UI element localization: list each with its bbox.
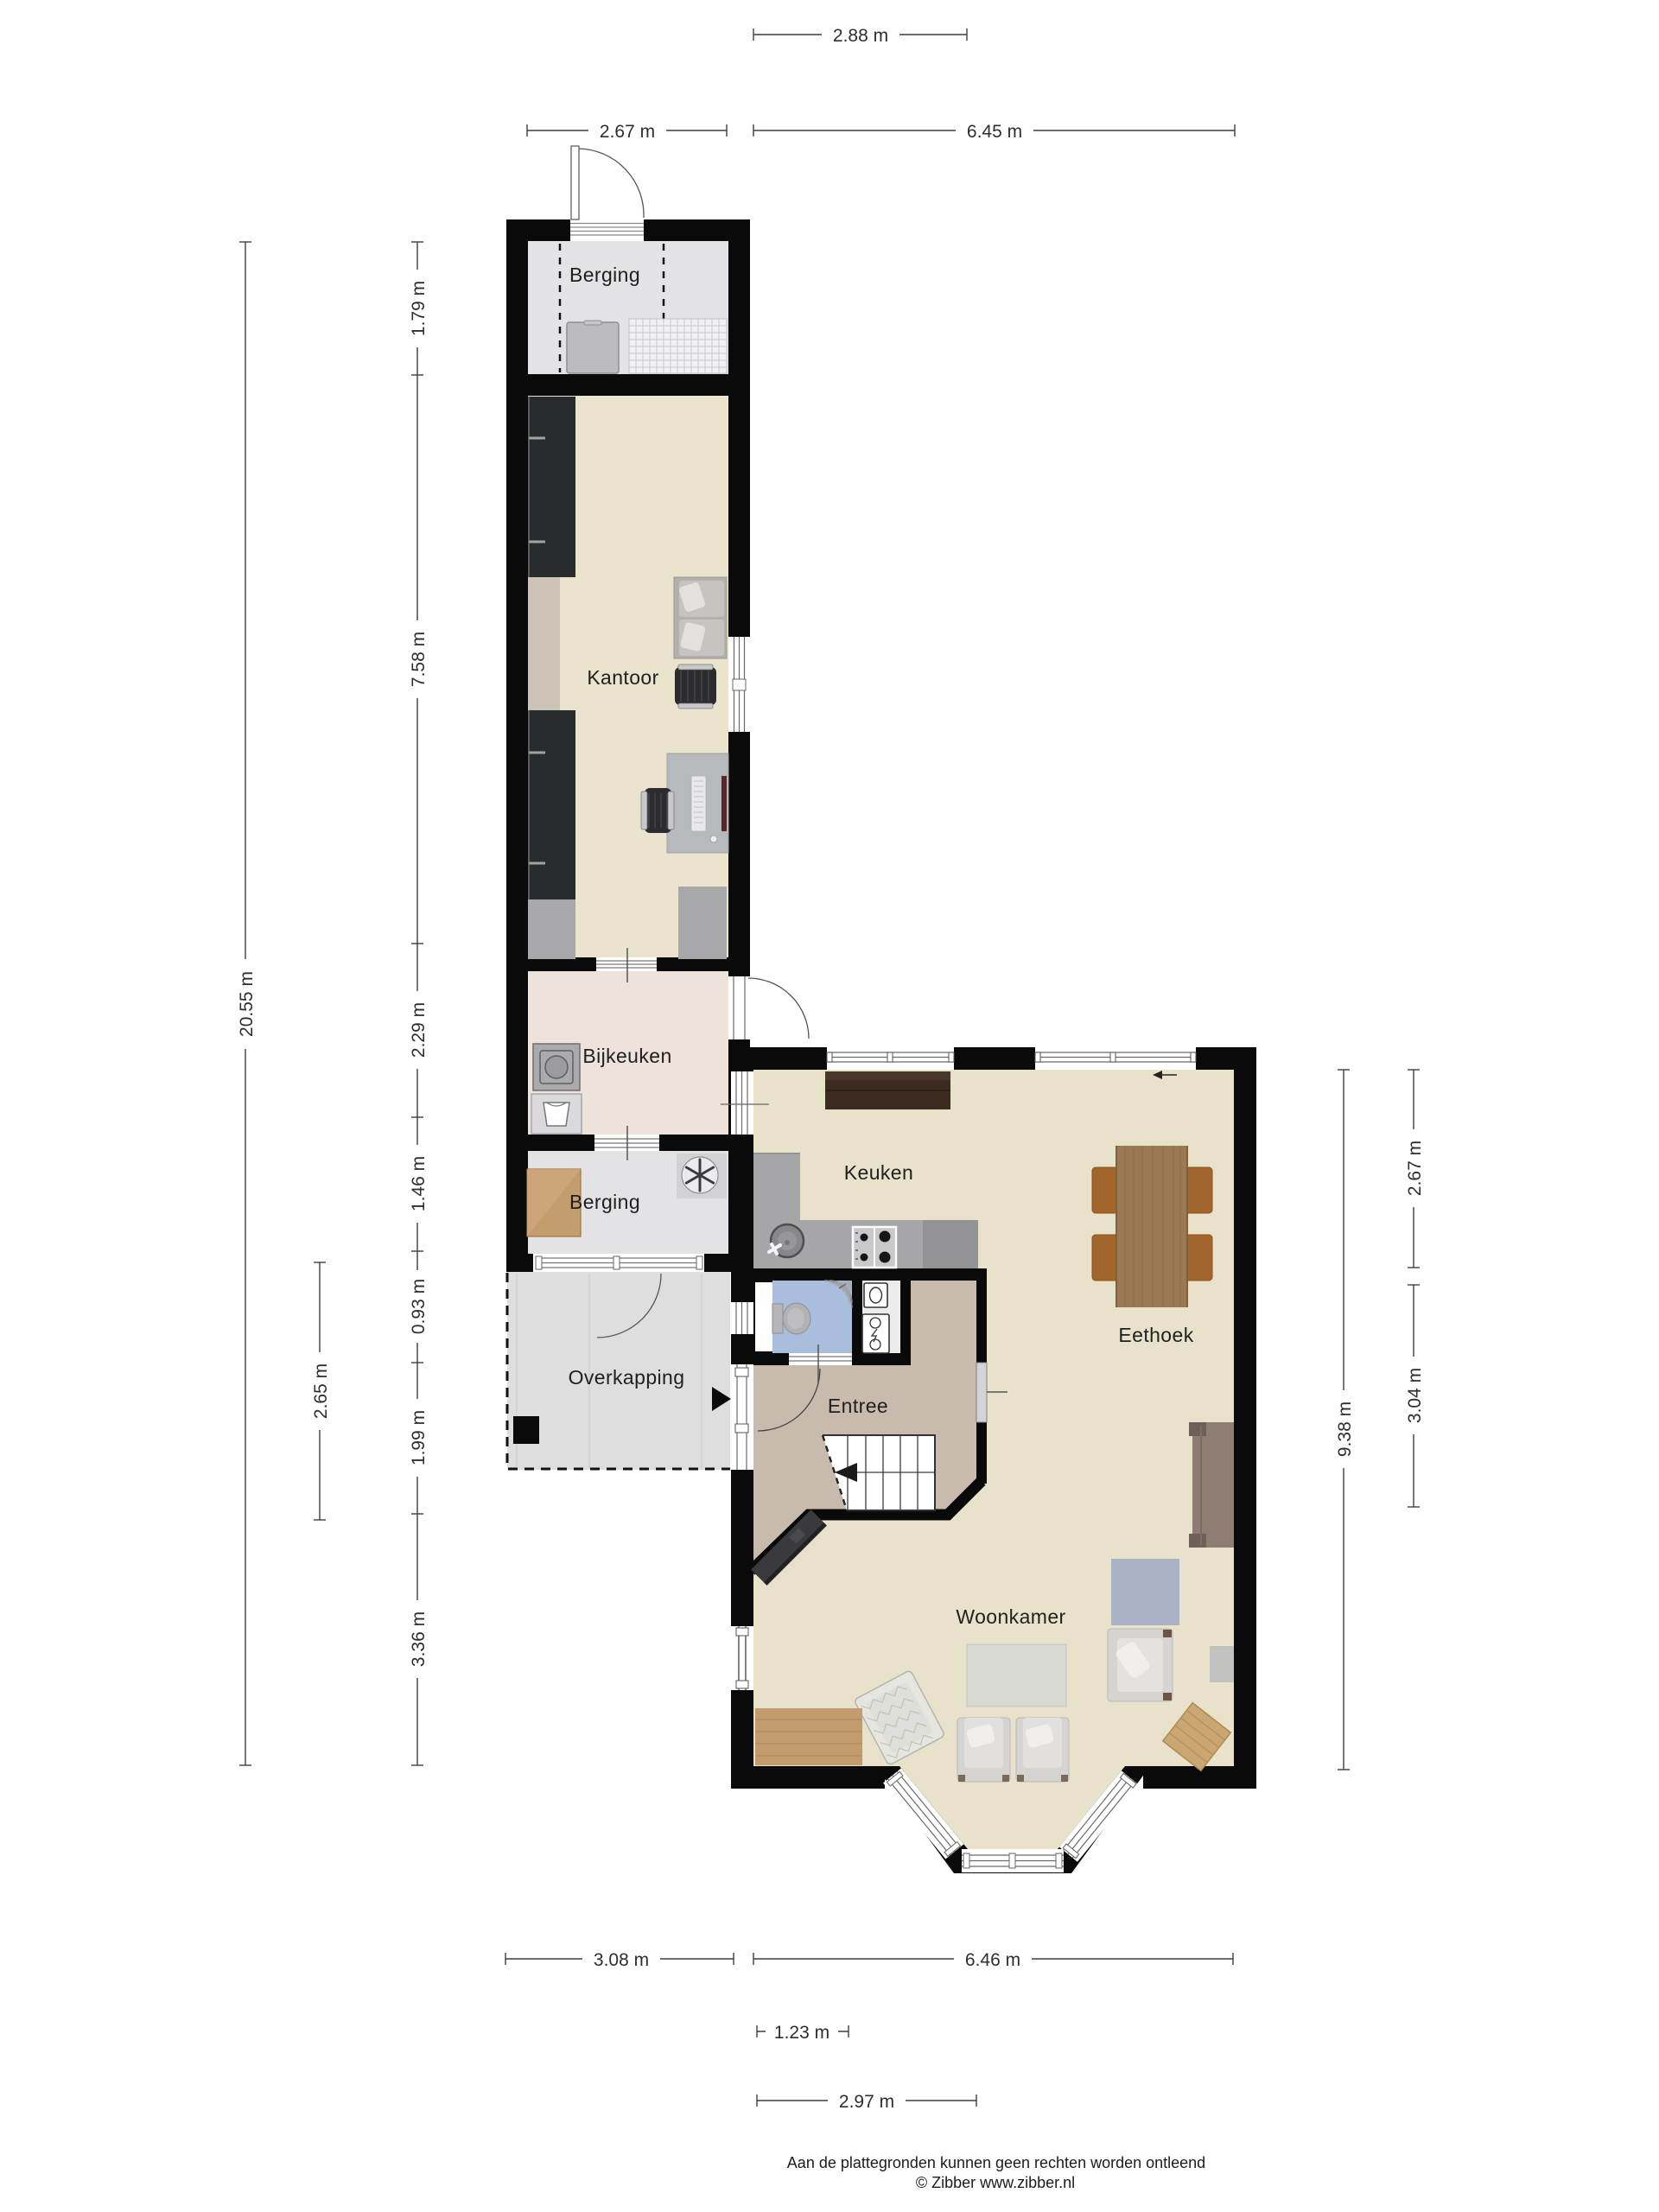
- svg-text:1.46 m: 1.46 m: [409, 1156, 429, 1211]
- svg-text:9.38 m: 9.38 m: [1335, 1402, 1355, 1457]
- svg-text:2.67 m: 2.67 m: [600, 122, 655, 142]
- svg-text:2.97 m: 2.97 m: [839, 2092, 894, 2112]
- svg-text:2.65 m: 2.65 m: [311, 1363, 331, 1419]
- svg-text:20.55 m: 20.55 m: [237, 971, 257, 1037]
- svg-text:Woonkamer: Woonkamer: [956, 1605, 1065, 1628]
- svg-text:Overkapping: Overkapping: [569, 1366, 685, 1389]
- svg-text:Berging: Berging: [569, 1191, 640, 1213]
- svg-text:1.23 m: 1.23 m: [774, 2023, 829, 2043]
- svg-text:Berging: Berging: [569, 264, 640, 286]
- svg-text:2.29 m: 2.29 m: [409, 1002, 429, 1058]
- svg-text:Keuken: Keuken: [844, 1161, 913, 1184]
- svg-text:Bijkeuken: Bijkeuken: [582, 1045, 671, 1067]
- svg-text:1.99 m: 1.99 m: [409, 1410, 429, 1465]
- svg-text:Eethoek: Eethoek: [1118, 1324, 1193, 1346]
- svg-text:6.45 m: 6.45 m: [967, 122, 1022, 142]
- svg-text:Aan de plattegronden kunnen ge: Aan de plattegronden kunnen geen rechten…: [787, 2154, 1205, 2171]
- svg-text:0.93 m: 0.93 m: [409, 1279, 429, 1334]
- svg-text:6.46 m: 6.46 m: [965, 1950, 1020, 1970]
- svg-text:1.79 m: 1.79 m: [409, 281, 429, 336]
- svg-text:3.08 m: 3.08 m: [594, 1950, 649, 1970]
- svg-text:Entree: Entree: [828, 1395, 888, 1417]
- svg-text:Kantoor: Kantoor: [587, 666, 658, 689]
- svg-text:3.36 m: 3.36 m: [409, 1611, 429, 1667]
- svg-text:7.58 m: 7.58 m: [409, 632, 429, 687]
- svg-text:© Zibber www.zibber.nl: © Zibber www.zibber.nl: [916, 2174, 1075, 2191]
- svg-text:3.04 m: 3.04 m: [1405, 1368, 1425, 1423]
- svg-text:2.88 m: 2.88 m: [833, 26, 888, 46]
- svg-text:2.67 m: 2.67 m: [1405, 1141, 1425, 1196]
